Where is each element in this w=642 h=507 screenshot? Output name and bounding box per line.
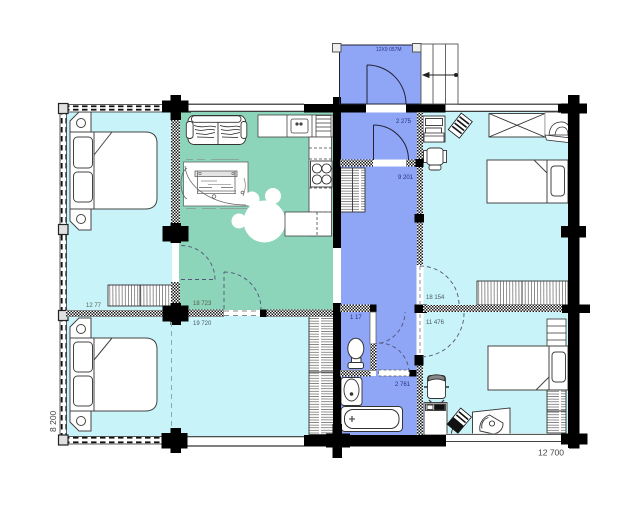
svg-text:8 200: 8 200 (48, 410, 58, 432)
svg-text:9 201: 9 201 (398, 175, 414, 181)
svg-text:11 476: 11 476 (426, 320, 445, 326)
svg-text:2 761: 2 761 (395, 382, 411, 388)
svg-text:12 700: 12 700 (538, 448, 564, 458)
svg-text:2 275: 2 275 (396, 119, 412, 125)
svg-text:12Х9 057М: 12Х9 057М (376, 47, 402, 53)
svg-text:18 723: 18 723 (193, 301, 212, 307)
svg-text:18 154: 18 154 (426, 295, 445, 301)
svg-text:12 77: 12 77 (86, 303, 102, 309)
svg-text:1 17: 1 17 (350, 315, 362, 321)
svg-text:19 720: 19 720 (193, 321, 212, 327)
